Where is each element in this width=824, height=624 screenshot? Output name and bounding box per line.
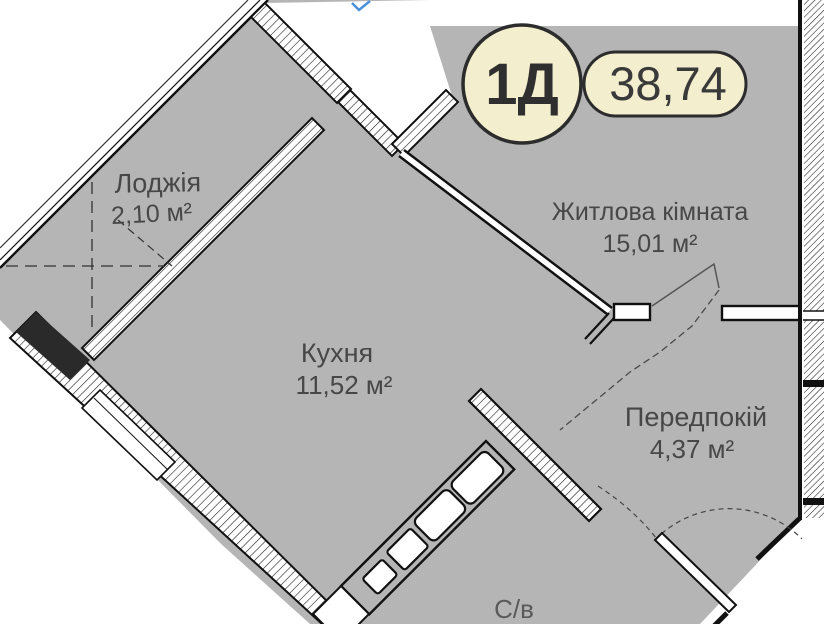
right-wall-junction-bar2 [803, 498, 824, 505]
outside-top-strip [428, 0, 800, 26]
room-area-living-room: 15,01 м² [602, 230, 697, 258]
unit-total-area: 38,74 [609, 57, 727, 110]
wall-living-hallway [722, 306, 800, 320]
room-label-kitchen: Кухня [301, 338, 373, 368]
unit-type-label: 1Д [485, 52, 559, 117]
room-label-loggia: Лоджія [114, 167, 201, 199]
room-area-hallway: 4,37 м² [650, 434, 735, 464]
floor-plan-svg: 1Д 38,74 Лоджія 2,10 м² Житлова кімната … [0, 0, 824, 624]
room-label-hallway: Передпокій [625, 402, 767, 432]
floor-plan-page: 1Д 38,74 Лоджія 2,10 м² Житлова кімната … [0, 0, 824, 624]
right-wall-junction-gap [803, 311, 824, 320]
room-label-living-room: Житлова кімната [552, 198, 749, 226]
partition-end-cap [614, 304, 650, 320]
room-area-loggia: 2,10 м² [110, 198, 192, 230]
room-label-bathroom: С/в [494, 594, 534, 624]
right-wall-hatch [804, 0, 824, 518]
right-wall [798, 0, 802, 520]
right-wall-junction-bar [803, 380, 824, 387]
room-area-kitchen: 11,52 м² [296, 370, 393, 400]
